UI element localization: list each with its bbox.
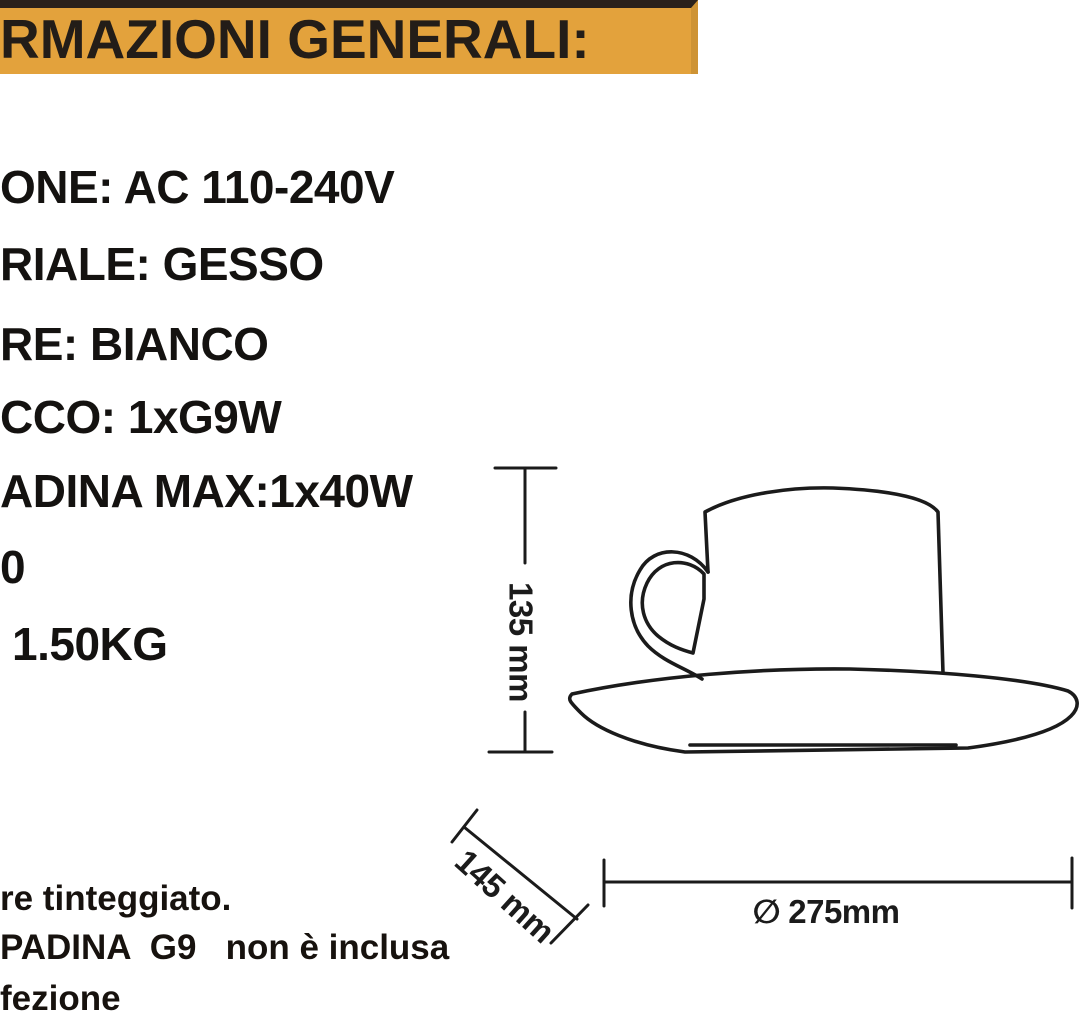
page-title: RMAZIONI GENERALI: — [0, 12, 590, 67]
spec-material: RIALE: GESSO — [0, 241, 324, 287]
spec-voltage: ONE: AC 110-240V — [0, 164, 394, 210]
spec-partial-value: 0 — [0, 544, 25, 590]
product-info-sheet: { "banner": { "title": "RMAZIONI GENERAL… — [0, 0, 1084, 1021]
spec-weight: 1.50KG — [12, 621, 168, 667]
note-package: fezione — [0, 981, 121, 1016]
spec-bulb-max: ADINA MAX:1x40W — [0, 468, 413, 514]
note-bulb-not-included: PADINA G9 non è inclusa — [0, 930, 449, 965]
diameter-value: 275mm — [788, 893, 899, 930]
cup-drawing — [570, 488, 1078, 752]
saucer-outline — [570, 669, 1078, 752]
diameter-symbol: ∅ — [753, 892, 781, 931]
spec-socket: CCO: 1xG9W — [0, 394, 281, 440]
spec-color: RE: BIANCO — [0, 321, 268, 367]
header-banner: RMAZIONI GENERALI: — [0, 0, 698, 74]
diameter-dimension-label: ∅ 275mm — [753, 892, 900, 931]
cup-handle-inner — [642, 563, 704, 653]
height-dimension-label: 135 mm — [503, 582, 540, 702]
depth-dimension-label: 145 mm — [448, 842, 562, 950]
cup-dimension-diagram: 135 mm 145 mm ∅ 275mm — [440, 440, 1084, 1000]
cup-body-outline — [705, 488, 943, 673]
note-paintable: re tinteggiato. — [0, 881, 231, 916]
